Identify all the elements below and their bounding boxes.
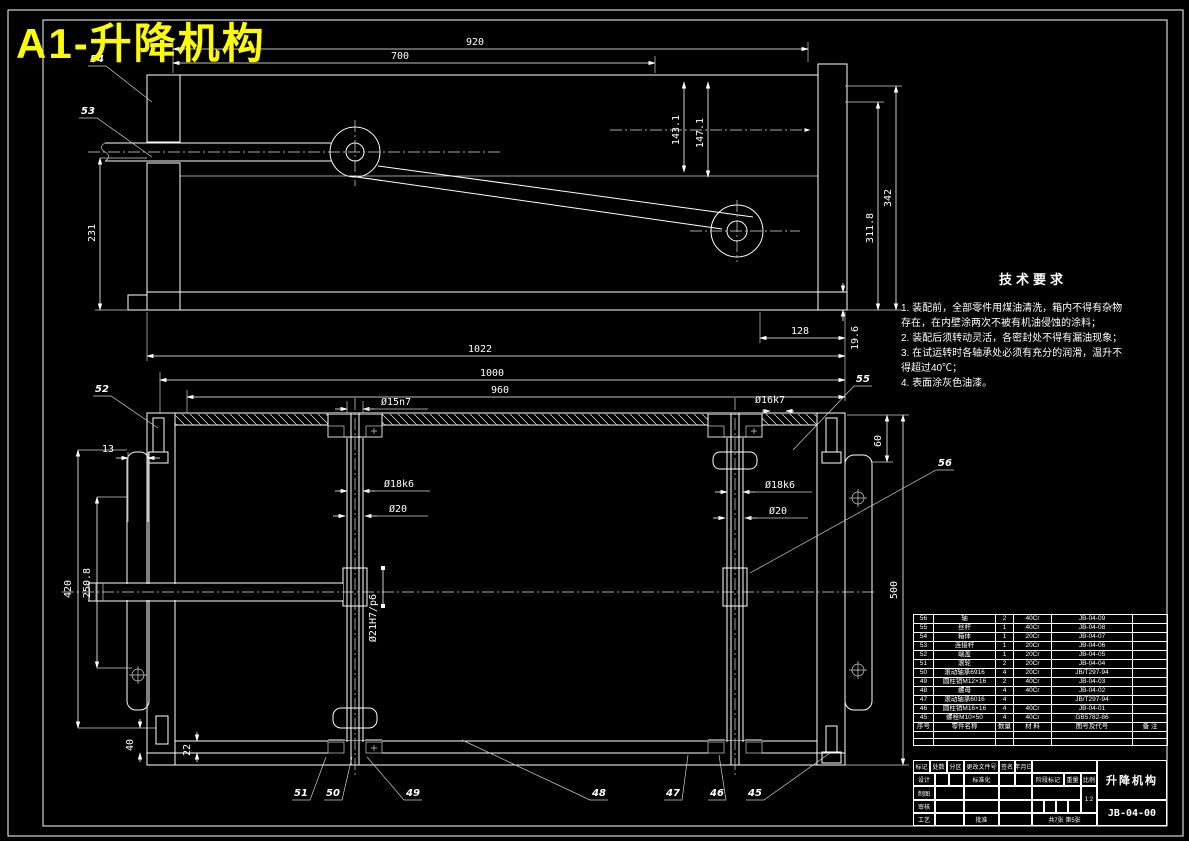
cell-name: 滚动轴承6916 xyxy=(934,669,996,678)
cell-name: 圆柱销M16×16 xyxy=(934,705,996,714)
col-header: 材 料 xyxy=(1014,723,1052,732)
cell-drawing-no: JB-04-09 xyxy=(1052,615,1133,624)
tb-stage-mark: 阶段标记 xyxy=(1032,773,1064,786)
cell-name: 滚轮 xyxy=(934,660,996,669)
tb-draw: 制图 xyxy=(913,786,935,800)
tb-empty xyxy=(935,800,964,813)
cell-empty xyxy=(1133,732,1168,739)
dim-label: 250.8 xyxy=(82,568,93,598)
tb-count: 处数 xyxy=(930,760,947,773)
tech-req-line: 4. 表面涂灰色油漆。 xyxy=(901,376,1165,391)
tb-check: 审核 xyxy=(913,800,935,813)
cell-qty: 2 xyxy=(996,615,1014,624)
cell-material: 20Cr xyxy=(1014,651,1052,660)
tb-empty xyxy=(935,813,964,826)
cell-no: 48 xyxy=(914,687,934,696)
cell-qty: 4 xyxy=(996,705,1014,714)
cell-material: 20Cr xyxy=(1014,660,1052,669)
table-row xyxy=(914,732,1168,739)
cell-drawing-no: JB-04-02 xyxy=(1052,687,1133,696)
dim-label: 960 xyxy=(491,385,509,396)
col-header: 备 注 xyxy=(1133,723,1168,732)
cell-note xyxy=(1133,678,1168,687)
page-title: A1-升降机构 xyxy=(16,10,266,71)
dim-label: Ø21H7/p6 xyxy=(367,594,379,642)
cell-drawing-no: JB-04-03 xyxy=(1052,678,1133,687)
cell-note xyxy=(1133,651,1168,660)
cell-note xyxy=(1133,660,1168,669)
cell-note xyxy=(1133,705,1168,714)
cell-empty xyxy=(1133,739,1168,746)
cell-qty: 4 xyxy=(996,696,1014,705)
cell-drawing-no: JB-04-08 xyxy=(1052,624,1133,633)
dim-label: Ø15n7 xyxy=(381,396,411,408)
cell-name: 丝杆 xyxy=(934,624,996,633)
cell-name: 螺栓M10×50 xyxy=(934,714,996,723)
dim-label: 143.1 xyxy=(671,115,682,145)
cell-no: 47 xyxy=(914,696,934,705)
balloon-label: 55 xyxy=(856,374,870,385)
cell-note xyxy=(1133,642,1168,651)
cell-qty: 2 xyxy=(996,678,1014,687)
balloon-label: 49 xyxy=(405,788,420,799)
tb-process: 工艺 xyxy=(913,813,935,826)
tb-empty xyxy=(1032,760,1097,773)
dim-label: Ø18k6 xyxy=(384,478,414,490)
dim-label: 19.6 xyxy=(850,326,861,350)
balloon-label: 48 xyxy=(591,788,606,799)
tb-empty xyxy=(999,813,1032,826)
balloon-label: 50 xyxy=(326,788,340,799)
cell-no: 50 xyxy=(914,669,934,678)
dim-label: 22 xyxy=(182,744,193,756)
cell-qty: 1 xyxy=(996,624,1014,633)
dim-label: 920 xyxy=(466,37,484,48)
parts-list-table: 56轴240CrJB-04-09 55丝杆140CrJB-04-08 54箱体1… xyxy=(913,614,1168,746)
cell-empty xyxy=(996,739,1014,746)
tb-drawing-number: JB-04-00 xyxy=(1097,800,1167,826)
dim-label: 40 xyxy=(125,739,136,751)
cell-drawing-no: JB-04-07 xyxy=(1052,633,1133,642)
balloon-label: 51 xyxy=(294,788,308,799)
table-row: 47滚动轴承60164JB/T297-94 xyxy=(914,696,1168,705)
tb-mark: 标记 xyxy=(913,760,930,773)
cell-empty xyxy=(1052,739,1133,746)
col-header: 序号 xyxy=(914,723,934,732)
cell-qty: 1 xyxy=(996,633,1014,642)
balloon-label: 52 xyxy=(95,384,109,395)
tb-empty xyxy=(1032,786,1081,800)
dim-label: 420 xyxy=(63,580,74,598)
cell-empty xyxy=(1014,739,1052,746)
cell-material: 40Cr xyxy=(1014,615,1052,624)
dim-label: Ø16k7 xyxy=(755,394,785,406)
col-header: 数量 xyxy=(996,723,1014,732)
technical-requirements: 技术要求 1. 装配前，全部零件用煤油清洗，箱内不得有杂物 存在，在内壁涂两次不… xyxy=(901,272,1165,391)
tb-empty xyxy=(1068,800,1081,813)
cell-material: 20Cr xyxy=(1014,669,1052,678)
table-row: 54箱体120CrJB-04-07 xyxy=(914,633,1168,642)
table-row: 49圆柱销M12×16240CrJB-04-03 xyxy=(914,678,1168,687)
tb-change-doc: 更改文件号 xyxy=(964,760,999,773)
dim-label: 1022 xyxy=(468,344,492,355)
cell-note xyxy=(1133,669,1168,678)
cell-qty: 4 xyxy=(996,669,1014,678)
cell-note xyxy=(1133,696,1168,705)
cell-note xyxy=(1133,687,1168,696)
tb-sign: 签名 xyxy=(999,760,1015,773)
cell-drawing-no: JB-04-01 xyxy=(1052,705,1133,714)
dim-label: 60 xyxy=(873,435,884,447)
tb-empty xyxy=(999,800,1032,813)
dim-label: 342 xyxy=(883,189,894,207)
tb-scale-value: 1:2 xyxy=(1081,786,1097,813)
cell-note xyxy=(1133,714,1168,723)
table-row: 52端盖120CrJB-04-05 xyxy=(914,651,1168,660)
cell-no: 53 xyxy=(914,642,934,651)
table-row: 46圆柱销M16×16440CrJB-04-01 xyxy=(914,705,1168,714)
dim-label: 700 xyxy=(391,51,409,62)
cell-no: 54 xyxy=(914,633,934,642)
tb-empty xyxy=(1056,800,1068,813)
cell-material: 40Cr xyxy=(1014,705,1052,714)
tb-empty xyxy=(1015,773,1032,786)
drawing-sheet: 920 700 143.1 147.1 311.8 342 231 128 19… xyxy=(0,0,1189,841)
balloon-label: 45 xyxy=(747,788,762,799)
tech-req-line: 1. 装配前，全部零件用煤油清洗，箱内不得有杂物 xyxy=(901,301,1165,316)
balloon-labels: 54 53 52 55 56 51 50 49 48 47 46 45 xyxy=(79,54,954,800)
cell-drawing-no: JB/T297-94 xyxy=(1052,696,1133,705)
tb-zone: 分区 xyxy=(947,760,964,773)
tb-sheet-info: 共7张 第5张 xyxy=(1032,813,1097,826)
tb-empty xyxy=(1044,800,1056,813)
table-row xyxy=(914,739,1168,746)
cell-name: 连接杆 xyxy=(934,642,996,651)
tb-design: 设计 xyxy=(913,773,935,786)
cell-empty xyxy=(934,732,996,739)
cell-drawing-no: GB5782-86 xyxy=(1052,714,1133,723)
tb-empty xyxy=(964,800,999,813)
cell-qty: 1 xyxy=(996,642,1014,651)
cell-note xyxy=(1133,633,1168,642)
dim-label: 128 xyxy=(791,326,809,337)
table-row: 50滚动轴承6916420CrJB/T297-94 xyxy=(914,669,1168,678)
tb-part-name: 升降机构 xyxy=(1097,760,1167,800)
cell-no: 45 xyxy=(914,714,934,723)
cell-drawing-no: JB/T297-94 xyxy=(1052,669,1133,678)
dim-label: Ø18k6 xyxy=(765,479,795,491)
table-row: 56轴240CrJB-04-09 xyxy=(914,615,1168,624)
dim-label: 1000 xyxy=(480,368,504,379)
cell-empty xyxy=(934,739,996,746)
cell-drawing-no: JB-04-05 xyxy=(1052,651,1133,660)
cell-qty: 1 xyxy=(996,651,1014,660)
dim-label: 147.1 xyxy=(695,118,706,148)
cell-empty xyxy=(1014,732,1052,739)
dim-label: Ø20 xyxy=(389,503,407,515)
tb-approve: 批准 xyxy=(964,813,999,826)
balloon-label: 47 xyxy=(665,788,680,799)
tb-empty xyxy=(935,786,964,800)
cell-qty: 4 xyxy=(996,714,1014,723)
cell-qty: 4 xyxy=(996,687,1014,696)
dimensions: 920 700 143.1 147.1 311.8 342 231 128 19… xyxy=(63,37,909,765)
cell-no: 46 xyxy=(914,705,934,714)
cell-material: 40Cr xyxy=(1014,678,1052,687)
cell-material: 40Cr xyxy=(1014,624,1052,633)
cell-material xyxy=(1014,696,1052,705)
cell-name: 圆柱销M12×16 xyxy=(934,678,996,687)
tb-empty xyxy=(935,773,949,786)
tb-empty xyxy=(949,773,964,786)
tb-empty xyxy=(1032,800,1044,813)
cell-no: 55 xyxy=(914,624,934,633)
tb-scale: 比例 xyxy=(1081,773,1097,786)
tb-empty xyxy=(999,773,1015,786)
cell-name: 轴 xyxy=(934,615,996,624)
balloon-label: 46 xyxy=(709,788,724,799)
tb-empty xyxy=(999,786,1032,800)
col-header: 零件名称 xyxy=(934,723,996,732)
title-block: 标记 处数 分区 更改文件号 签名 年月日 设计 标准化 制图 审核 工艺 批准… xyxy=(913,760,1167,826)
cell-empty xyxy=(996,732,1014,739)
lower-view xyxy=(62,398,876,778)
cell-note xyxy=(1133,624,1168,633)
tb-empty xyxy=(964,786,999,800)
table-row: 53连接杆120CrJB-04-06 xyxy=(914,642,1168,651)
table-header-row: 序号零件名称数量材 料图号及代号备 注 xyxy=(914,723,1168,732)
table-row: 48螺母440CrJB-04-02 xyxy=(914,687,1168,696)
tech-req-line: 3. 在试运转时各轴承处必须有充分的润滑，温升不 xyxy=(901,346,1165,361)
cell-empty xyxy=(914,732,934,739)
col-header: 图号及代号 xyxy=(1052,723,1133,732)
upper-view xyxy=(88,64,847,310)
balloon-label: 56 xyxy=(938,458,952,469)
tb-weight: 重量 xyxy=(1064,773,1081,786)
cell-name: 箱体 xyxy=(934,633,996,642)
tech-req-title: 技术要求 xyxy=(901,272,1165,287)
cell-no: 49 xyxy=(914,678,934,687)
cell-no: 51 xyxy=(914,660,934,669)
balloon-label: 53 xyxy=(81,106,95,117)
cell-name: 滚动轴承6016 xyxy=(934,696,996,705)
tb-date: 年月日 xyxy=(1015,760,1032,773)
cell-empty xyxy=(914,739,934,746)
dim-label: 13 xyxy=(102,444,114,455)
cell-material: 20Cr xyxy=(1014,633,1052,642)
cell-no: 56 xyxy=(914,615,934,624)
dim-label: 311.8 xyxy=(865,213,876,243)
dim-label: Ø20 xyxy=(769,505,787,517)
tech-req-line: 存在，在内壁涂两次不被有机油侵蚀的涂料； xyxy=(901,316,1165,331)
tb-standardization: 标准化 xyxy=(964,773,999,786)
cell-material: 20Cr xyxy=(1014,642,1052,651)
cell-qty: 2 xyxy=(996,660,1014,669)
table-row: 45螺栓M10×50440CrGB5782-86 xyxy=(914,714,1168,723)
cell-note xyxy=(1133,615,1168,624)
cell-material: 40Cr xyxy=(1014,714,1052,723)
dim-label: 231 xyxy=(87,224,98,242)
tech-req-line: 得超过40℃； xyxy=(901,361,1165,376)
table-row: 55丝杆140CrJB-04-08 xyxy=(914,624,1168,633)
cell-material: 40Cr xyxy=(1014,687,1052,696)
table-row: 51滚轮220CrJB-04-04 xyxy=(914,660,1168,669)
dim-label: 500 xyxy=(889,581,900,599)
cell-drawing-no: JB-04-06 xyxy=(1052,642,1133,651)
cell-name: 端盖 xyxy=(934,651,996,660)
tech-req-line: 2. 装配后须转动灵活，各密封处不得有漏油现象； xyxy=(901,331,1165,346)
cell-name: 螺母 xyxy=(934,687,996,696)
cell-drawing-no: JB-04-04 xyxy=(1052,660,1133,669)
cell-no: 52 xyxy=(914,651,934,660)
cell-empty xyxy=(1052,732,1133,739)
